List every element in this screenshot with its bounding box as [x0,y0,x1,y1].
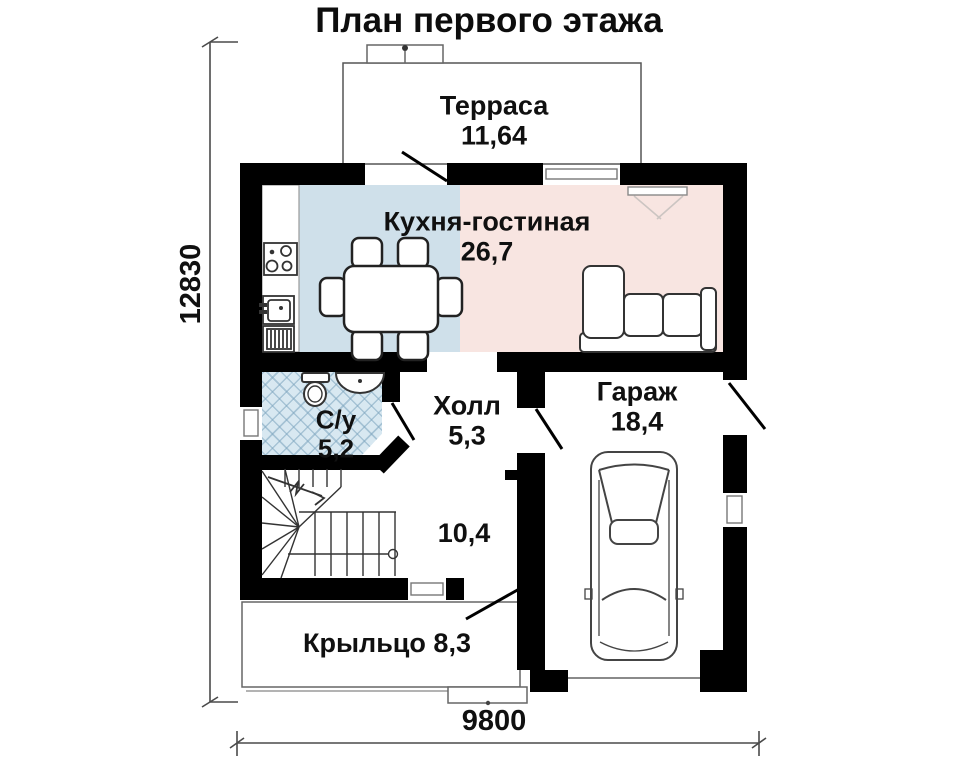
garage-label: Гараж 18,4 [597,377,678,436]
winder-stairs-icon [262,469,398,578]
kitchen-living-label: Кухня-гостиная 26,7 [384,207,591,266]
washer-icon [263,326,294,352]
hall-label: Холл 5,3 [433,391,501,450]
chair-icon [436,278,462,316]
chair-icon [352,330,382,360]
hall-area: 5,3 [433,421,501,451]
stove-icon [264,243,297,275]
porch-name: Крыльцо [303,628,426,658]
kitchen-living-area: 26,7 [384,237,591,267]
bathroom-label: С/у 5,2 [316,405,356,462]
terrace-name: Терраса [440,91,549,121]
garage-name: Гараж [597,377,678,407]
porch-area: 8,3 [433,628,471,658]
wall-bathroom-chamfer [378,441,404,468]
floor-plan: План первого этажа [0,0,978,768]
corner-sofa-icon [580,266,716,352]
kitchen-living-name: Кухня-гостиная [384,207,591,237]
terrace-label: Терраса 11,64 [440,91,549,150]
porch-label: Крыльцо 8,3 [303,629,471,659]
horizontal-dimension-label: 9800 [462,706,527,738]
bathroom-name: С/у [316,405,356,434]
bathroom-area: 5,2 [316,434,356,463]
toilet-icon [302,373,329,406]
vertical-dimension-label: 12830 [176,244,208,325]
tv-panel-icon [628,187,687,219]
washbasin-icon [336,373,384,393]
kitchen-sink-icon [259,296,294,324]
hall-name: Холл [433,391,501,421]
car-icon [585,452,683,660]
chair-icon [398,330,428,360]
garage-area: 18,4 [597,407,678,437]
terrace-area: 11,64 [440,121,549,151]
chair-icon [320,278,346,316]
stair-hall-area: 10,4 [438,519,491,549]
page-title: План первого этажа [0,1,978,41]
chair-icon [352,238,382,268]
stair-hall-label: 10,4 [438,519,491,549]
